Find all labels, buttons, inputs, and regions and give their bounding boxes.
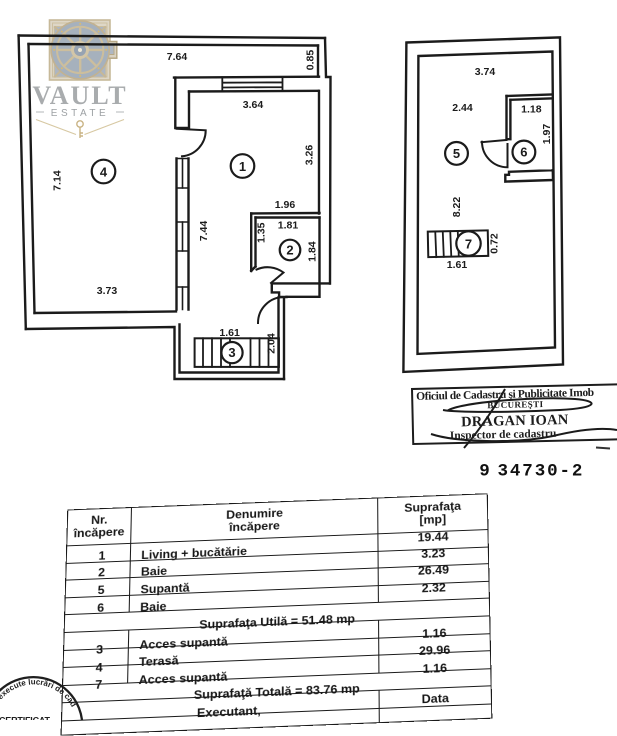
svg-text:2: 2 xyxy=(286,243,293,258)
svg-text:1.81: 1.81 xyxy=(278,220,299,232)
svg-text:4: 4 xyxy=(100,164,108,179)
svg-text:1.97: 1.97 xyxy=(541,124,553,145)
svg-text:7.64: 7.64 xyxy=(167,51,188,63)
svg-text:1.18: 1.18 xyxy=(521,104,542,116)
svg-text:2.44: 2.44 xyxy=(452,102,473,114)
svg-text:1.61: 1.61 xyxy=(219,327,240,339)
svg-text:0.85: 0.85 xyxy=(305,50,317,71)
svg-text:3: 3 xyxy=(228,345,235,360)
svg-text:6: 6 xyxy=(520,145,527,160)
svg-text:9: 9 xyxy=(479,462,490,482)
svg-text:7.14: 7.14 xyxy=(52,170,64,191)
svg-text:3.26: 3.26 xyxy=(304,145,316,166)
svg-text:8.22: 8.22 xyxy=(451,197,463,218)
svg-text:1: 1 xyxy=(239,159,246,174)
svg-text:7: 7 xyxy=(465,236,472,251)
svg-text:1.61: 1.61 xyxy=(447,259,468,271)
svg-text:1.96: 1.96 xyxy=(275,199,296,211)
svg-text:1.35: 1.35 xyxy=(256,222,268,243)
svg-text:0.72: 0.72 xyxy=(488,233,500,254)
svg-text:3.74: 3.74 xyxy=(475,66,496,78)
svg-text:5: 5 xyxy=(453,146,460,161)
svg-text:3.64: 3.64 xyxy=(243,99,264,111)
svg-text:34730-2: 34730-2 xyxy=(498,462,585,482)
svg-text:1.84: 1.84 xyxy=(307,241,319,262)
svg-text:CERTIFICAT: CERTIFICAT xyxy=(0,716,51,721)
svg-text:3.73: 3.73 xyxy=(97,285,118,297)
svg-text:ESTATE: ESTATE xyxy=(51,108,109,119)
svg-text:2.04: 2.04 xyxy=(266,333,278,354)
svg-text:7.44: 7.44 xyxy=(198,221,210,242)
svg-text:VAULT: VAULT xyxy=(32,81,127,110)
